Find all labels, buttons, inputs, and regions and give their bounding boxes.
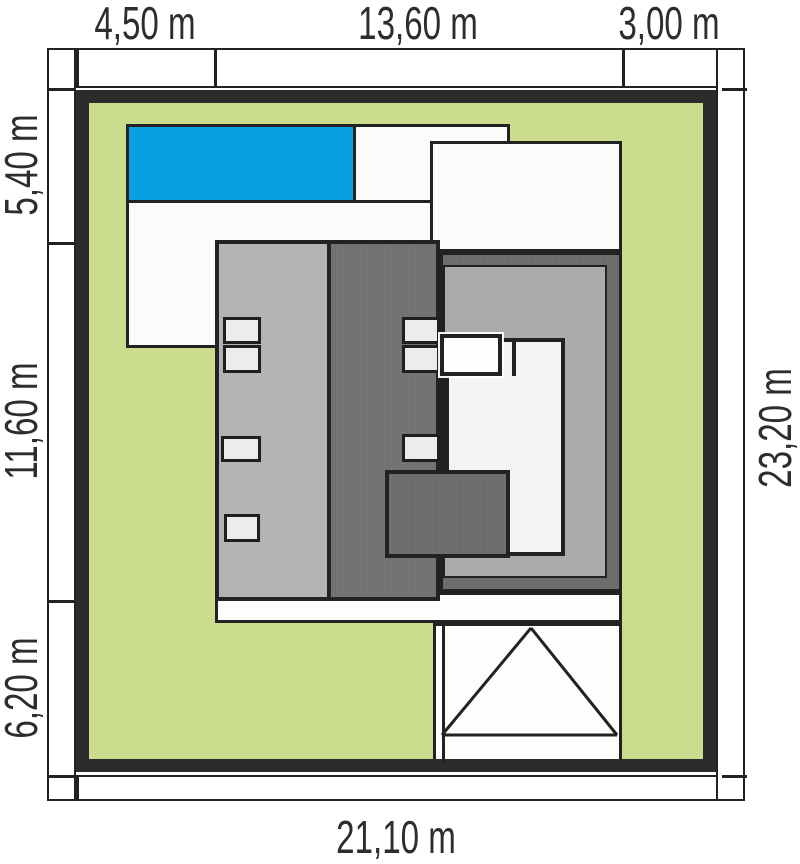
dimension-band-top	[47, 48, 745, 88]
driveway	[433, 623, 622, 759]
dimension-band-bottom	[47, 775, 745, 801]
skylight-window	[221, 436, 261, 462]
dimension-band-right	[716, 48, 745, 801]
tick	[49, 775, 74, 778]
tick	[49, 600, 74, 603]
tick	[722, 88, 747, 91]
tick	[722, 775, 747, 778]
skylight-window	[402, 345, 440, 373]
dimension-band-left	[47, 48, 76, 801]
dimension-label-top-3: 3,00 m	[618, 0, 719, 46]
skylight-window	[223, 317, 261, 344]
dimension-label-left-3: 6,20 m	[0, 637, 44, 738]
roof-window-mullion	[512, 338, 516, 376]
tick	[49, 88, 74, 91]
roof-window	[440, 334, 502, 376]
roof-ridge-divider	[327, 244, 331, 597]
tick	[49, 242, 74, 245]
skylight-window	[224, 514, 260, 542]
tick	[76, 777, 79, 799]
tick	[76, 50, 79, 86]
swimming-pool	[126, 124, 356, 203]
dimension-label-bottom-1: 21,10 m	[336, 814, 456, 860]
skylight-window	[223, 345, 261, 373]
dimension-label-left-2: 11,60 m	[0, 362, 44, 479]
dimension-label-top-2: 13,60 m	[358, 0, 478, 46]
tick	[622, 50, 625, 86]
entrance-canopy-lines	[436, 626, 619, 756]
roof-half-light	[219, 244, 329, 597]
roof-block	[385, 470, 510, 558]
skylight-window	[402, 434, 440, 462]
dimension-label-top-1: 4,50 m	[94, 0, 195, 46]
skylight-window	[402, 317, 440, 344]
terrace-step	[430, 141, 622, 252]
dimension-label-right-1: 23,20 m	[752, 368, 798, 488]
tick	[214, 50, 217, 86]
dimension-label-left-1: 5,40 m	[0, 114, 44, 215]
